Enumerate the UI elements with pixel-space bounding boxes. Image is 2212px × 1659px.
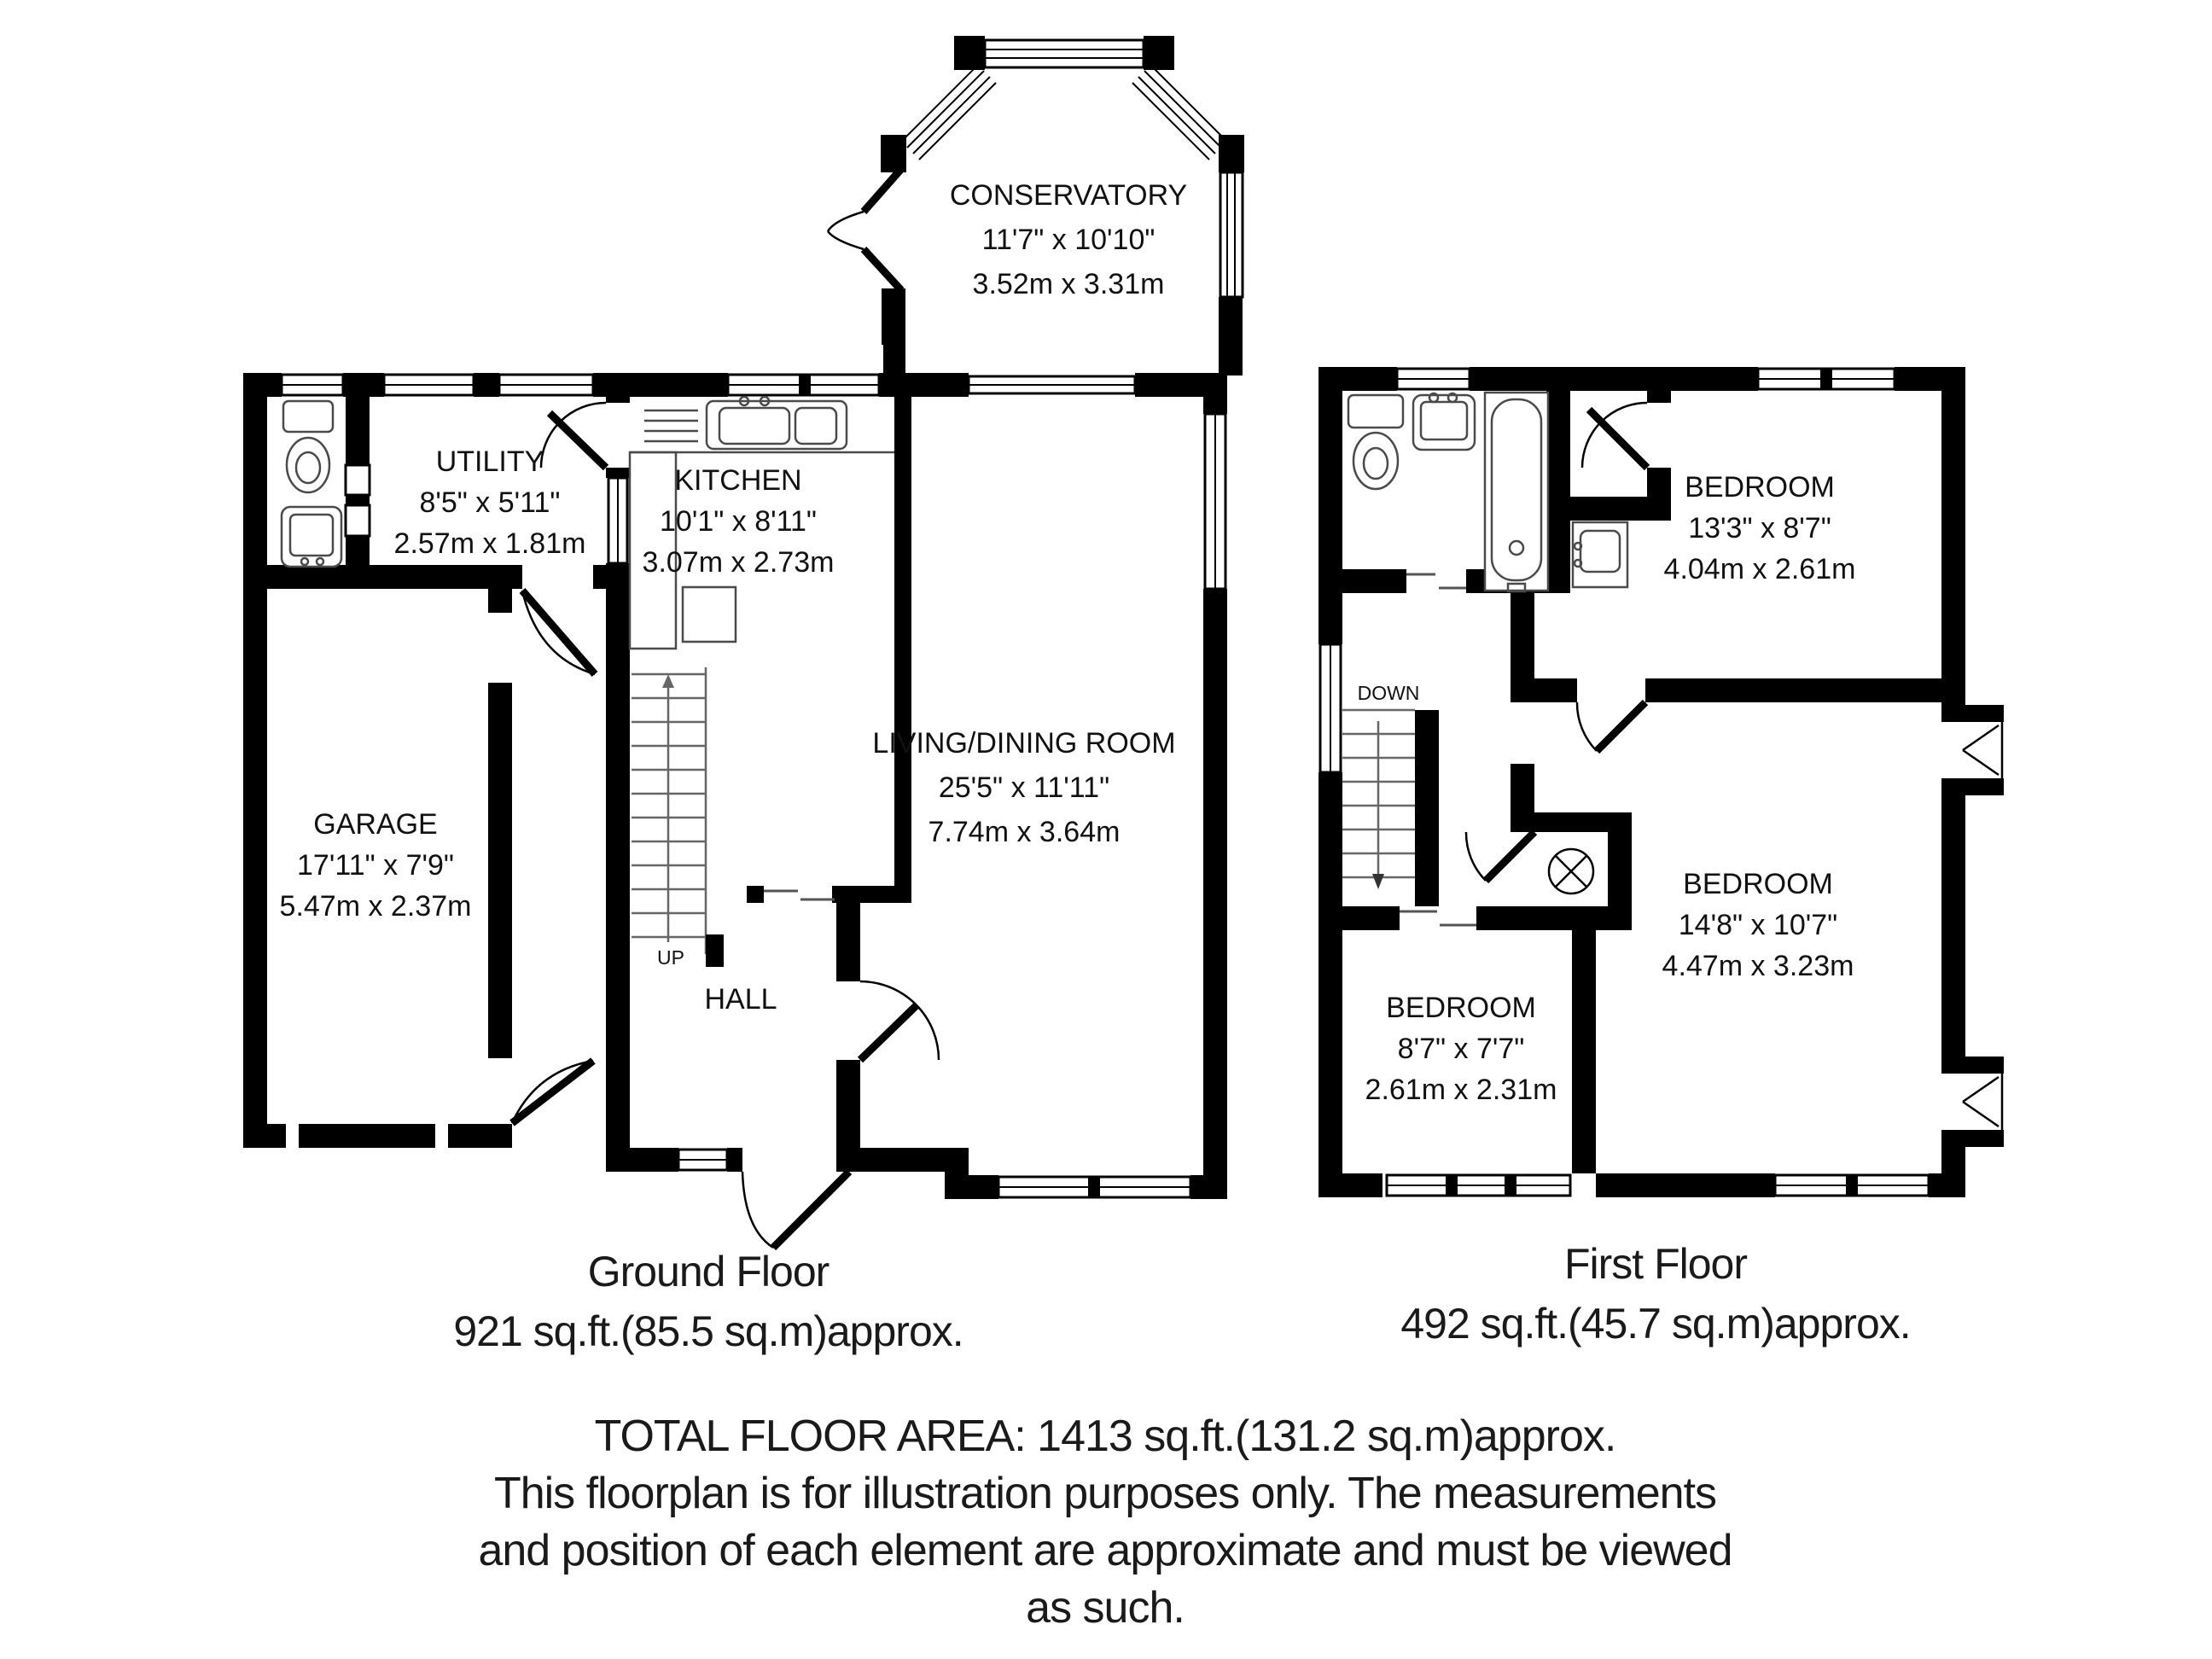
ground-floor-area: 921 sq.ft.(85.5 sq.m)approx. (453, 1307, 963, 1355)
toilet-icon (283, 401, 333, 492)
captions: Ground Floor 921 sq.ft.(85.5 sq.m)approx… (453, 1240, 1910, 1355)
cupboard-door (1466, 832, 1534, 881)
living-imperial: 25'5" x 11'11" (939, 771, 1109, 804)
utility-imperial: 8'5" x 5'11" (419, 486, 560, 519)
bedroom2-window-bottom (1775, 1175, 1929, 1196)
conservatory-french-doors (828, 169, 901, 290)
floorplan-canvas: UP (0, 0, 2212, 1659)
ground-floor-plan: UP (243, 36, 1244, 1248)
garage-imperial: 17'11" x 7'9" (297, 849, 454, 882)
bedroom2-name: BEDROOM (1683, 868, 1833, 900)
bedroom1-name: BEDROOM (1685, 471, 1835, 504)
stairs-up: UP (632, 667, 724, 969)
utility-door (541, 403, 606, 468)
disclaimer-line-1: This floorplan is for illustration purpo… (494, 1469, 1716, 1518)
kitchen-window (728, 375, 879, 395)
conservatory-window-upper-right (1132, 65, 1227, 160)
conservatory-window-upper-left (901, 65, 996, 160)
kitchen-name: KITCHEN (674, 464, 801, 497)
down-label: DOWN (1358, 682, 1420, 704)
garage-name: GARAGE (313, 808, 437, 841)
bathroom-fixtures (1348, 393, 1627, 591)
bedroom3-name: BEDROOM (1386, 992, 1536, 1024)
bathroom-toilet-icon (1348, 395, 1403, 489)
stairs-down: DOWN (1342, 682, 1419, 889)
living-window-bottom (998, 1177, 1190, 1197)
bathroom-window (1397, 369, 1470, 389)
bedroom2-metric: 4.47m x 3.23m (1662, 950, 1854, 982)
bedroom3-metric: 2.61m x 2.31m (1365, 1074, 1557, 1106)
front-door (742, 1172, 849, 1248)
living-metric: 7.74m x 3.64m (928, 816, 1121, 848)
utility-window-2 (499, 375, 593, 395)
living-name: LIVING/DINING ROOM (872, 727, 1175, 760)
disclaimer-line-2: and position of each element are approxi… (478, 1526, 1732, 1575)
bedroom3-window (1387, 1175, 1570, 1196)
ground-house-walls (606, 373, 1227, 1199)
bedroom2-imperial: 14'8" x 10'7" (1679, 909, 1837, 941)
conservatory-structure (828, 36, 1244, 393)
bedroom1-imperial: 13'3" x 8'7" (1688, 512, 1831, 544)
kitchen-unit (683, 587, 736, 642)
kitchen-sink-icon (644, 397, 847, 449)
footer-disclaimer: TOTAL FLOOR AREA: 1413 sq.ft.(131.2 sq.m… (478, 1412, 1732, 1633)
first-floor-area: 492 sq.ft.(45.7 sq.m)approx. (1400, 1300, 1910, 1348)
passage-door-bottom (512, 1061, 593, 1123)
bedroom3-door-marks (1400, 911, 1476, 925)
bedroom3-imperial: 8'7" x 7'7" (1398, 1033, 1525, 1065)
cylinder-icon (1549, 849, 1593, 894)
conservatory-threshold (969, 376, 1135, 393)
garage-metric: 5.47m x 2.37m (280, 890, 472, 923)
bathroom-basin-icon (1413, 393, 1475, 450)
hall-name: HALL (704, 983, 777, 1016)
living-room-door (860, 981, 939, 1060)
bedroom1-metric: 4.04m x 2.61m (1664, 553, 1856, 585)
utility-metric: 2.57m x 1.81m (394, 527, 586, 560)
bedroom1-basin-icon (1573, 522, 1627, 587)
wc-sink-icon (282, 507, 341, 567)
bedroom2-recess-bottom (1941, 1057, 2004, 1147)
hall-window (678, 1150, 727, 1170)
up-label: UP (657, 946, 684, 969)
kitchen-metric: 3.07m x 2.73m (643, 546, 835, 579)
disclaimer-line-3: as such. (1026, 1583, 1185, 1633)
conservatory-metric: 3.52m x 3.31m (973, 268, 1165, 300)
conservatory-window-right (1220, 172, 1243, 297)
conservatory-window-top (985, 40, 1144, 67)
bath-icon (1485, 393, 1548, 591)
bathroom-door-marks (1406, 574, 1466, 588)
landing-window (1320, 644, 1341, 772)
passage-door-top (522, 591, 595, 674)
house-side-window (608, 478, 627, 563)
bedroom1-door (1582, 403, 1647, 468)
conservatory-name: CONSERVATORY (950, 179, 1187, 212)
wc-window (282, 375, 343, 395)
total-floor-area: TOTAL FLOOR AREA: 1413 sq.ft.(131.2 sq.m… (595, 1412, 1616, 1461)
utility-window-1 (384, 375, 474, 395)
conservatory-imperial: 11'7" x 10'10" (982, 224, 1155, 256)
kitchen-door-marks (764, 891, 835, 899)
wc-fixtures (282, 401, 341, 567)
bedroom2-recess-top (1941, 705, 2004, 795)
first-floor-caption: First Floor (1564, 1240, 1747, 1288)
bedroom1-window (1758, 369, 1895, 389)
kitchen-imperial: 10'1" x 8'11" (660, 505, 817, 538)
utility-name: UTILITY (436, 445, 544, 478)
ground-floor-caption: Ground Floor (588, 1248, 829, 1295)
living-window-right (1205, 414, 1225, 589)
first-floor-plan: DOWN (1318, 367, 2004, 1197)
bedroom2-door (1577, 702, 1645, 751)
